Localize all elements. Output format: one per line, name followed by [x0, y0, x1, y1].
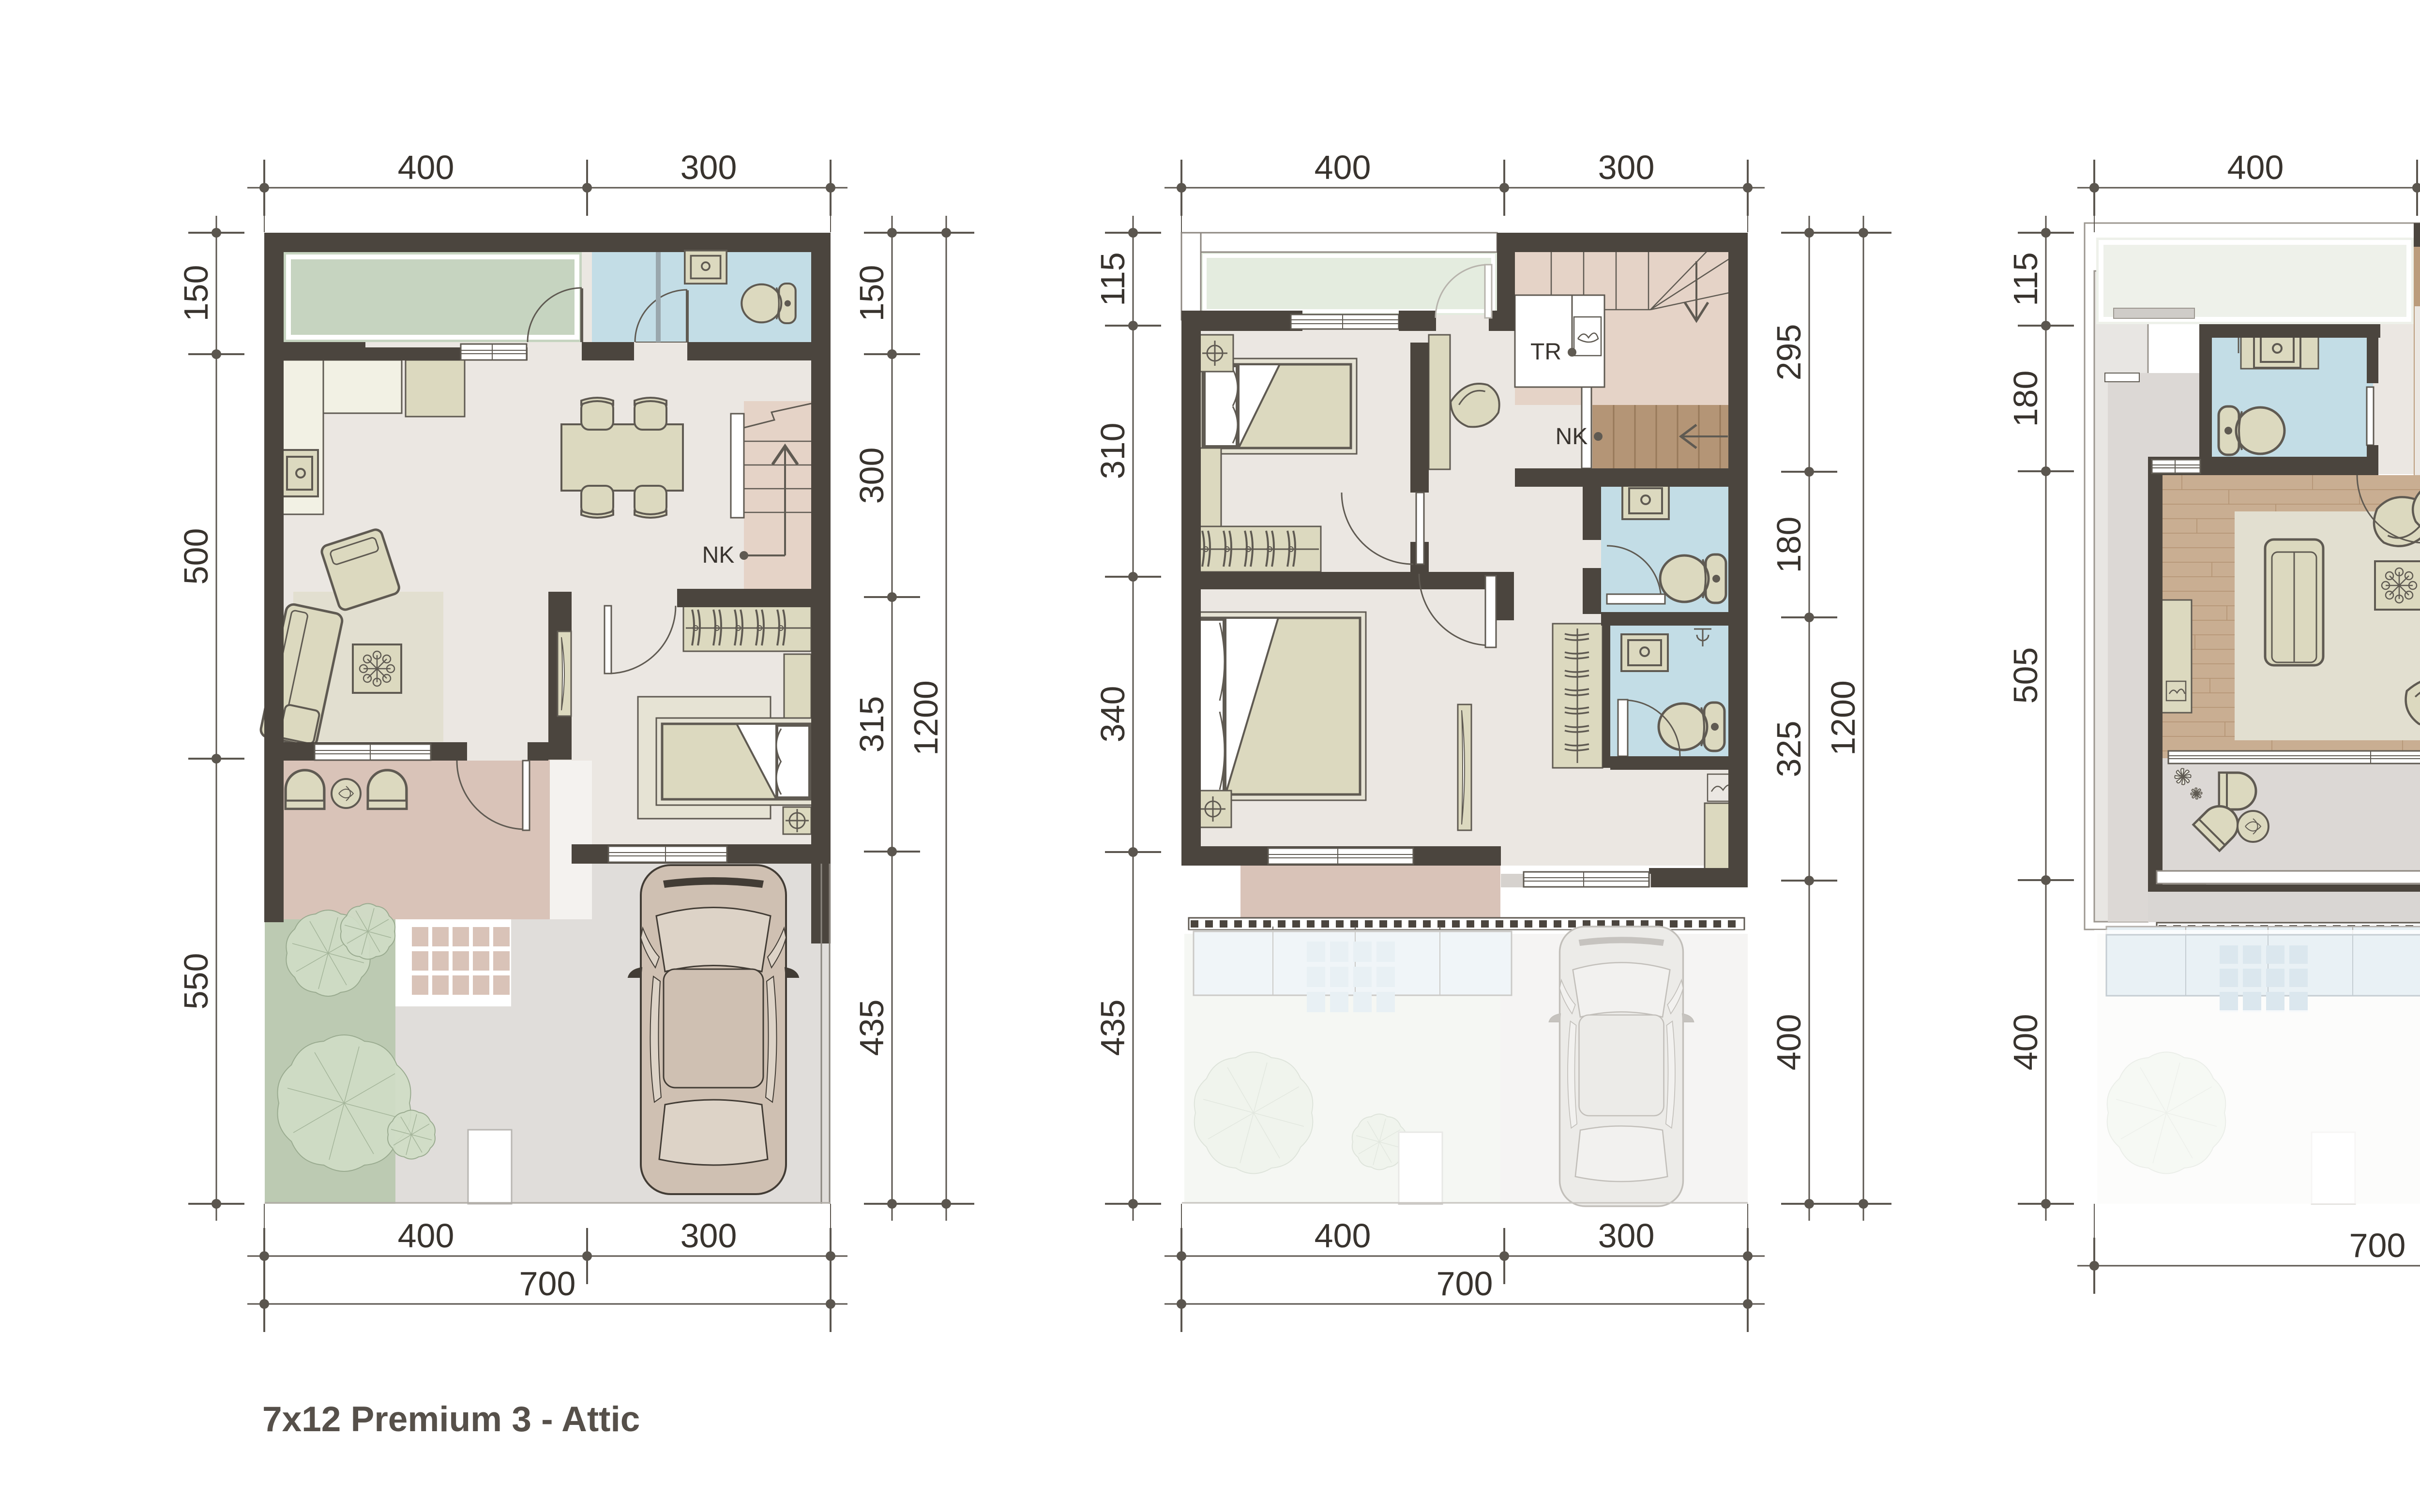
svg-text:7x12 Premium 3 - Attic: 7x12 Premium 3 - Attic: [262, 1400, 640, 1439]
svg-text:300: 300: [853, 448, 891, 504]
svg-text:400: 400: [2227, 149, 2284, 186]
svg-text:300: 300: [681, 1217, 737, 1255]
svg-text:TR: TR: [1530, 339, 1561, 365]
svg-text:400: 400: [398, 149, 454, 186]
svg-text:180: 180: [2007, 371, 2044, 427]
svg-text:NK: NK: [702, 542, 735, 568]
svg-text:310: 310: [1094, 423, 1132, 479]
svg-text:1200: 1200: [1824, 680, 1862, 756]
svg-text:300: 300: [1598, 149, 1655, 186]
svg-text:400: 400: [1315, 1217, 1371, 1255]
svg-text:300: 300: [1598, 1217, 1655, 1255]
svg-text:150: 150: [177, 265, 215, 322]
svg-text:400: 400: [1315, 149, 1371, 186]
svg-text:400: 400: [1770, 1014, 1808, 1071]
svg-text:700: 700: [2349, 1227, 2406, 1264]
svg-text:315: 315: [853, 696, 891, 753]
svg-text:435: 435: [1094, 1000, 1132, 1056]
svg-text:300: 300: [681, 149, 737, 186]
svg-text:505: 505: [2007, 647, 2044, 704]
svg-text:700: 700: [519, 1265, 576, 1302]
svg-text:700: 700: [1437, 1265, 1493, 1302]
svg-text:295: 295: [1770, 324, 1808, 381]
svg-text:NK: NK: [1556, 424, 1588, 449]
svg-text:400: 400: [398, 1217, 454, 1255]
svg-text:115: 115: [1094, 252, 1132, 306]
svg-text:180: 180: [1770, 517, 1808, 573]
svg-text:1200: 1200: [907, 680, 945, 756]
svg-text:435: 435: [853, 1000, 891, 1056]
svg-text:500: 500: [177, 528, 215, 585]
svg-text:325: 325: [1770, 721, 1808, 778]
svg-text:150: 150: [853, 265, 891, 322]
svg-text:115: 115: [2007, 252, 2044, 306]
svg-text:550: 550: [177, 953, 215, 1010]
svg-text:340: 340: [1094, 686, 1132, 743]
svg-text:400: 400: [2007, 1014, 2044, 1071]
